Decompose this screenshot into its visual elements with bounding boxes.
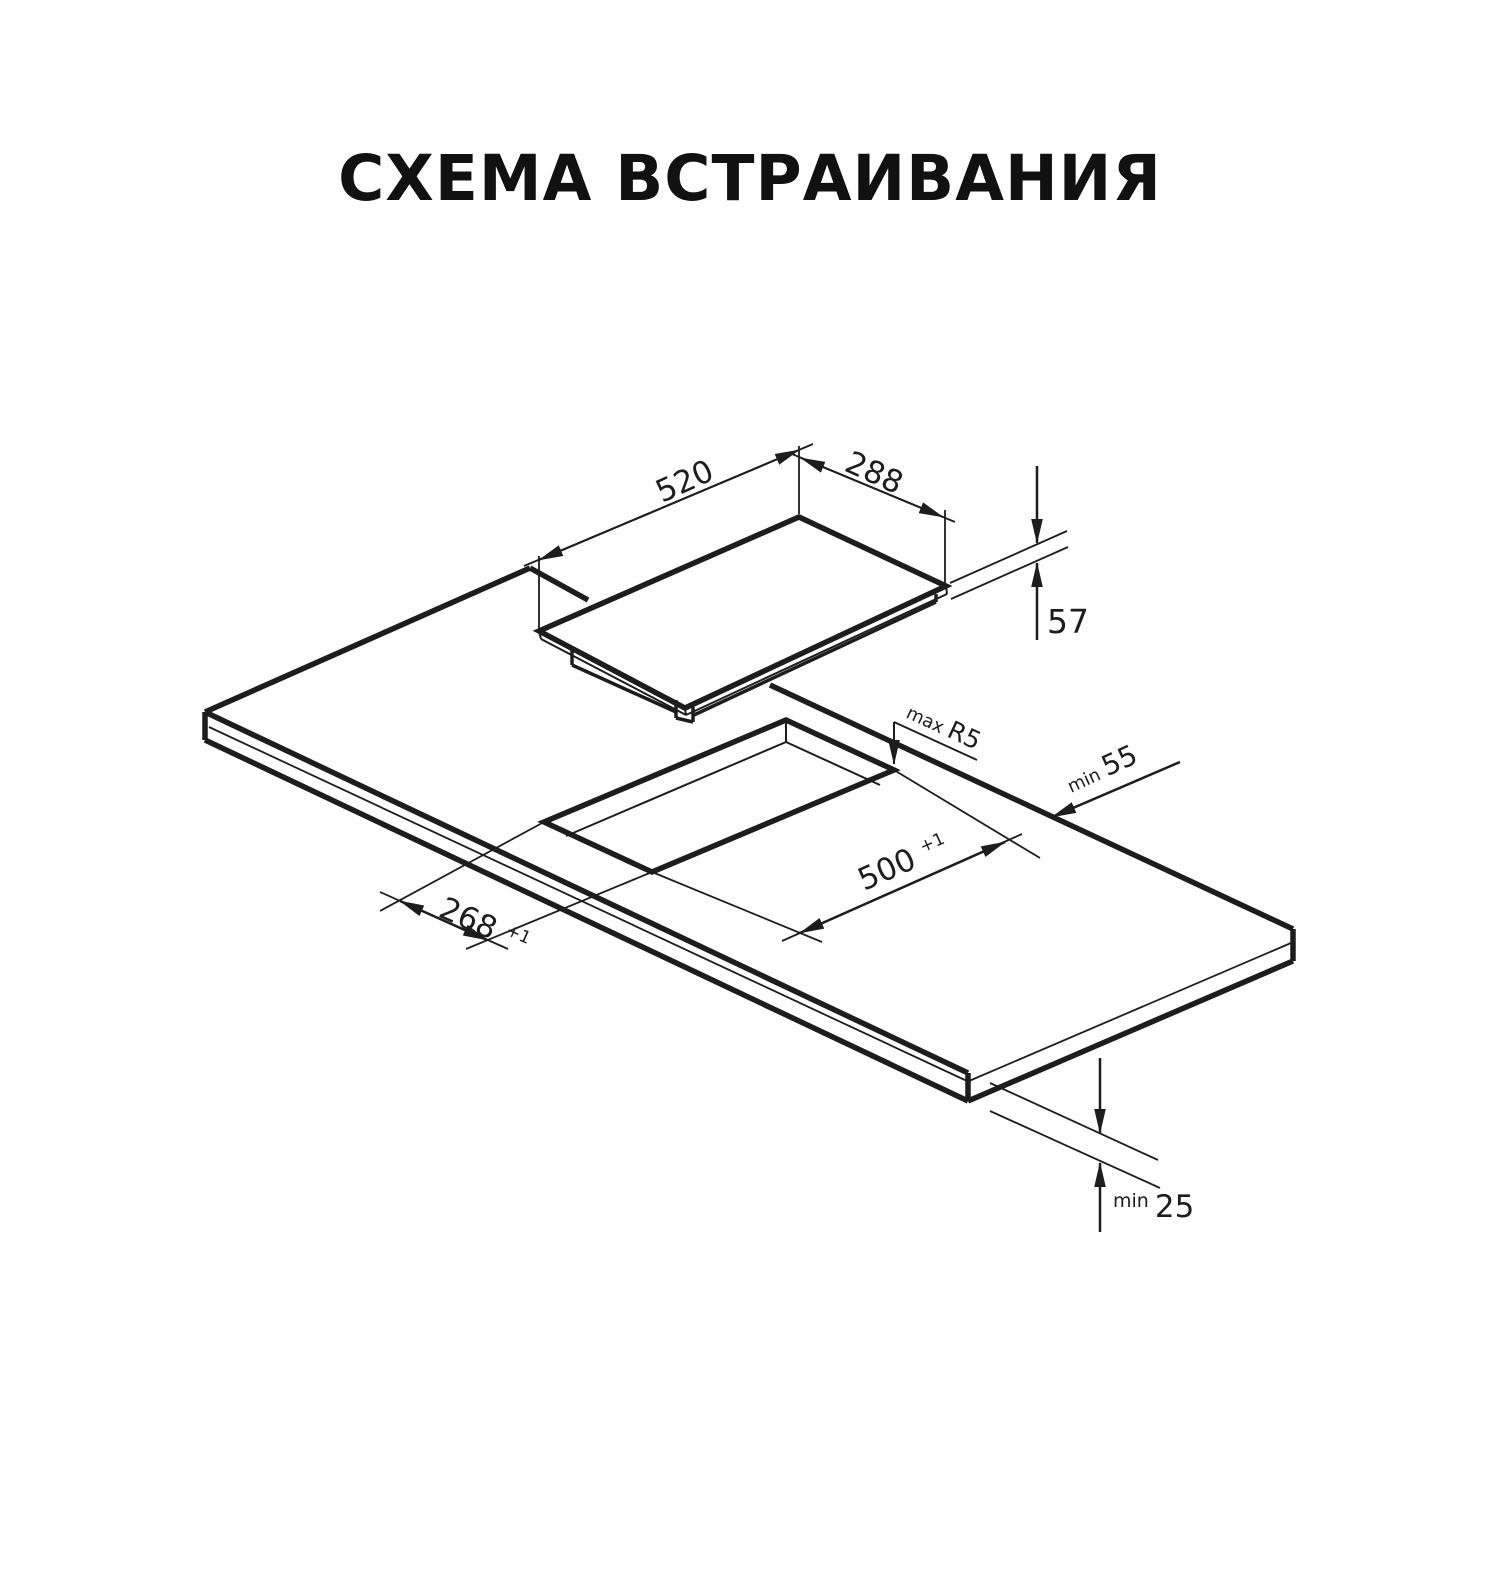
dim-cutout-width-label: 268 +1: [434, 890, 535, 961]
dim-hob-width-label: 520: [650, 453, 719, 510]
installation-scheme-page: СХЕМА ВСТРАИВАНИЯ: [0, 0, 1500, 1586]
dim-edge-clearance: min 55: [1052, 738, 1180, 817]
dim-hob-height-label: 57: [1047, 602, 1089, 641]
dim-cutout-length: 500 +1: [652, 770, 1040, 942]
page-title: СХЕМА ВСТРАИВАНИЯ: [338, 142, 1162, 215]
installation-diagram: СХЕМА ВСТРАИВАНИЯ: [0, 0, 1500, 1586]
dim-edge-clearance-label: min 55: [1060, 738, 1142, 799]
dim-hob-depth-label: 288: [840, 445, 909, 502]
countertop-edge-lines: [209, 727, 1291, 1081]
dim-hob-height: 57: [950, 466, 1089, 641]
cutout-outline: [544, 720, 894, 872]
dim-worktop-thickness: min 25: [990, 1058, 1194, 1232]
cutout-inner-walls: [566, 720, 880, 836]
dim-cutout-radius: max R5: [894, 696, 986, 764]
dim-worktop-thickness-label: min 25: [1113, 1189, 1194, 1225]
dim-cutout-radius-label: max R5: [902, 696, 985, 755]
